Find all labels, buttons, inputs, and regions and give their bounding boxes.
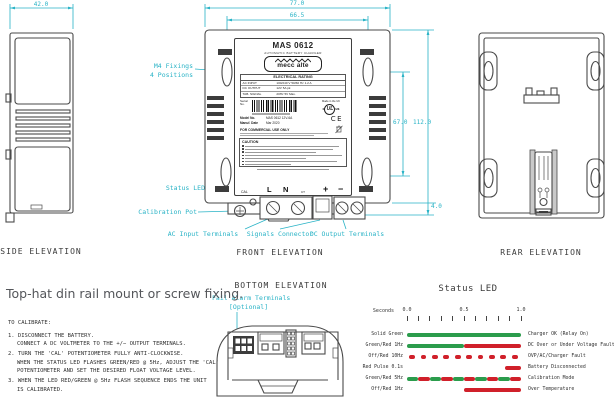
label-fine-print: [240, 135, 314, 136]
led-segment-red: [487, 377, 498, 381]
led-timing-bar: [407, 377, 521, 381]
mounting-note: Top-hat din rail mount or screw fixing.: [6, 286, 243, 301]
led-row-5: Off/Red 1HzOver Temperature: [370, 386, 614, 394]
led-pattern-label: Green/Red 1Hz: [365, 342, 403, 350]
brand-logo: mecc alte: [264, 56, 322, 72]
terminal-cal-label: CAL: [241, 190, 248, 194]
rating-value: 100/240 V 50/60 Hz 1.2 A: [276, 81, 345, 86]
ce-mark: CE: [331, 115, 343, 123]
axis-minor-tick: [429, 316, 430, 321]
ul-suffix: us: [335, 107, 339, 111]
axis-minor-tick: [521, 316, 522, 321]
led-segment-red: [478, 355, 484, 359]
axis-minor-tick: [486, 316, 487, 321]
caution-title: CAUTION: [242, 140, 344, 144]
terminal-ct-label: CT: [301, 190, 305, 194]
calibration-line-2: 2. TURN THE 'CAL' POTENTIOMETER FULLY AN…: [8, 350, 248, 358]
front-elevation-title: FRONT ELEVATION: [236, 248, 323, 257]
led-segment-green: [430, 377, 441, 381]
led-timing-bar: [407, 333, 521, 337]
axis-minor-tick: [509, 316, 510, 321]
side-elevation-drawing: [0, 0, 100, 230]
tick-label-0: 0.0: [402, 307, 411, 313]
label-model: MAS 0612: [235, 41, 351, 50]
led-segment-green: [475, 377, 486, 381]
commercial-use-text: FOR COMMERCIAL USE ONLY: [240, 128, 346, 132]
rating-value: 12V 5A pk: [276, 86, 345, 91]
caution-box: CAUTION: [239, 138, 347, 168]
axis-label-seconds: Seconds: [373, 308, 394, 314]
calibration-title: TO CALIBRATE:: [8, 320, 51, 326]
calibration-line-0: 1. DISCONNECT THE BATTERY.: [8, 332, 248, 340]
side-body-outline: [10, 33, 73, 213]
status-led-chart-title: Status LED: [438, 284, 497, 294]
led-row-2: Off/Red 10HzOVP/AC/Charger Fault: [370, 353, 614, 361]
bottom-elevation-title: BOTTOM ELEVATION: [234, 281, 327, 290]
led-segment-red: [500, 355, 506, 359]
led-segment-red: [421, 355, 427, 359]
model-date-section: Model No. MAS 0612 12V-6A Manuf. Date Ma…: [240, 116, 346, 125]
led-timing-bar: [407, 366, 521, 370]
weee-icon: [335, 125, 343, 134]
rear-din-slider: [530, 150, 557, 215]
device-label: MAS 0612 AUTOMATIC BATTERY CHARGER mecc …: [234, 38, 352, 196]
led-segment-red: [418, 377, 429, 381]
rating-key: DC OUTPUT: [241, 86, 276, 91]
led-timing-bar: [407, 388, 521, 392]
axis-minor-tick: [418, 316, 419, 321]
made-in-text: Made in the UK: [316, 100, 346, 103]
calibration-line-1: CONNECT A DC VOLTMETER TO THE +/− OUTPUT…: [8, 340, 248, 348]
led-pattern-label: Red Pulse 0.1s: [363, 364, 403, 372]
led-segment-red: [510, 377, 521, 381]
led-meaning-label: Calibration Mode: [528, 375, 574, 383]
led-pattern-label: Green/Red 5Hz: [365, 375, 403, 383]
status-led-chart: Status LED Seconds 0.0 0.5 1.0 Solid Gre…: [370, 282, 614, 400]
date-value: Mar 2020: [266, 121, 279, 126]
led-segment-green: [498, 377, 509, 381]
rating-value: 20Hz 5V Max.: [276, 92, 345, 97]
serial-section: Serial No. Made in the UK c UL us: [240, 100, 346, 115]
led-pattern-label: Off/Red 10Hz: [368, 353, 403, 361]
led-timing-bar: [407, 344, 521, 348]
serial-label: Serial No.: [240, 100, 252, 107]
ul-badge: UL: [324, 104, 335, 115]
led-segment-red: [432, 355, 438, 359]
terminal-l-label: L: [267, 185, 272, 194]
led-pattern-label: Solid Green: [371, 331, 403, 339]
led-row-1: Green/Red 1HzDC Over or Under Voltage Fa…: [370, 342, 614, 350]
terminal-n-label: N: [283, 185, 288, 194]
led-segment-red: [464, 377, 475, 381]
calibration-line-4: POTENTIOMETER AND SET THE DESIRED FLOAT …: [8, 367, 248, 375]
side-elevation-title: SIDE ELEVATION: [0, 247, 81, 256]
terminal-minus-label: −: [338, 184, 343, 194]
led-segment-green: [407, 333, 521, 337]
led-meaning-label: OVP/AC/Charger Fault: [528, 353, 586, 361]
axis-minor-tick: [475, 316, 476, 321]
led-row-3: Red Pulse 0.1sBattery Disconnected: [370, 364, 614, 372]
brand-name: mecc alte: [265, 63, 321, 69]
calibration-instructions: 1. DISCONNECT THE BATTERY.CONNECT A DC V…: [8, 332, 248, 394]
led-meaning-label: Over Temperature: [528, 386, 574, 394]
terminal-plus-label: +: [323, 184, 328, 194]
axis-minor-tick: [407, 316, 408, 321]
rear-elevation-drawing: [460, 0, 614, 230]
led-segment-red: [466, 355, 472, 359]
tick-label-05: 0.5: [459, 307, 468, 313]
led-segment-red: [464, 344, 521, 348]
led-segment-red: [512, 355, 518, 359]
torque-note-line: [257, 169, 329, 170]
led-pattern-label: Off/Red 1Hz: [371, 386, 403, 394]
led-meaning-label: DC Over or Under Voltage Fault: [528, 342, 614, 350]
label-fine-print: [240, 133, 328, 134]
rating-key: TAB. SIGNAL: [241, 92, 276, 97]
led-segment-red: [443, 355, 449, 359]
led-segment-red: [505, 366, 521, 370]
serial-barcode: [252, 100, 298, 112]
calibration-line-5: 3. WHEN THE LED RED/GREEN @ 5Hz FLASH SE…: [8, 377, 248, 385]
led-row-4: Green/Red 5HzCalibration Mode: [370, 375, 614, 383]
led-meaning-label: Charger OK (Relay On): [528, 331, 589, 339]
led-meaning-label: Battery Disconnected: [528, 364, 586, 372]
calibration-line-3: WHEN THE STATUS LED FLASHES GREEN/RED @ …: [8, 359, 248, 367]
axis-minor-tick: [498, 316, 499, 321]
label-subtitle: AUTOMATIC BATTERY CHARGER: [235, 51, 351, 55]
led-timing-bar: [407, 355, 521, 359]
rating-row: TAB. SIGNAL 20Hz 5V Max.: [241, 92, 345, 97]
led-segment-green: [407, 377, 418, 381]
led-segment-green: [453, 377, 464, 381]
rating-key: AC INPUT: [241, 81, 276, 86]
axis-minor-tick: [441, 316, 442, 321]
serial-number-text: [252, 113, 290, 115]
led-segment-green: [407, 344, 464, 348]
rear-elevation-title: REAR ELEVATION: [500, 248, 581, 257]
terminal-labels: CAL L N CT + −: [235, 183, 351, 194]
led-segment-red: [464, 388, 521, 392]
calibration-line-6: IS CALIBRATED.: [8, 386, 248, 394]
dc-terminal-block: [334, 197, 365, 219]
led-segment-red: [441, 377, 452, 381]
bottom-din-tab: [258, 380, 298, 393]
axis-minor-tick: [464, 316, 465, 321]
led-segment-red: [409, 355, 415, 359]
date-label: Manuf. Date: [240, 121, 266, 126]
axis-minor-tick: [452, 316, 453, 321]
side-foot: [6, 213, 14, 222]
electrical-rating-box: ELECTRICAL RATING AC INPUT 100/240 V 50/…: [240, 74, 346, 98]
led-segment-red: [489, 355, 495, 359]
datasheet-page: 42.0 SIDE ELEVATION: [0, 0, 614, 400]
dim-side-width: 42.0: [34, 1, 48, 8]
led-segment-red: [455, 355, 461, 359]
led-row-0: Solid GreenCharger OK (Relay On): [370, 331, 614, 339]
ul-mark: c UL us: [316, 104, 346, 115]
tick-label-1: 1.0: [516, 307, 525, 313]
